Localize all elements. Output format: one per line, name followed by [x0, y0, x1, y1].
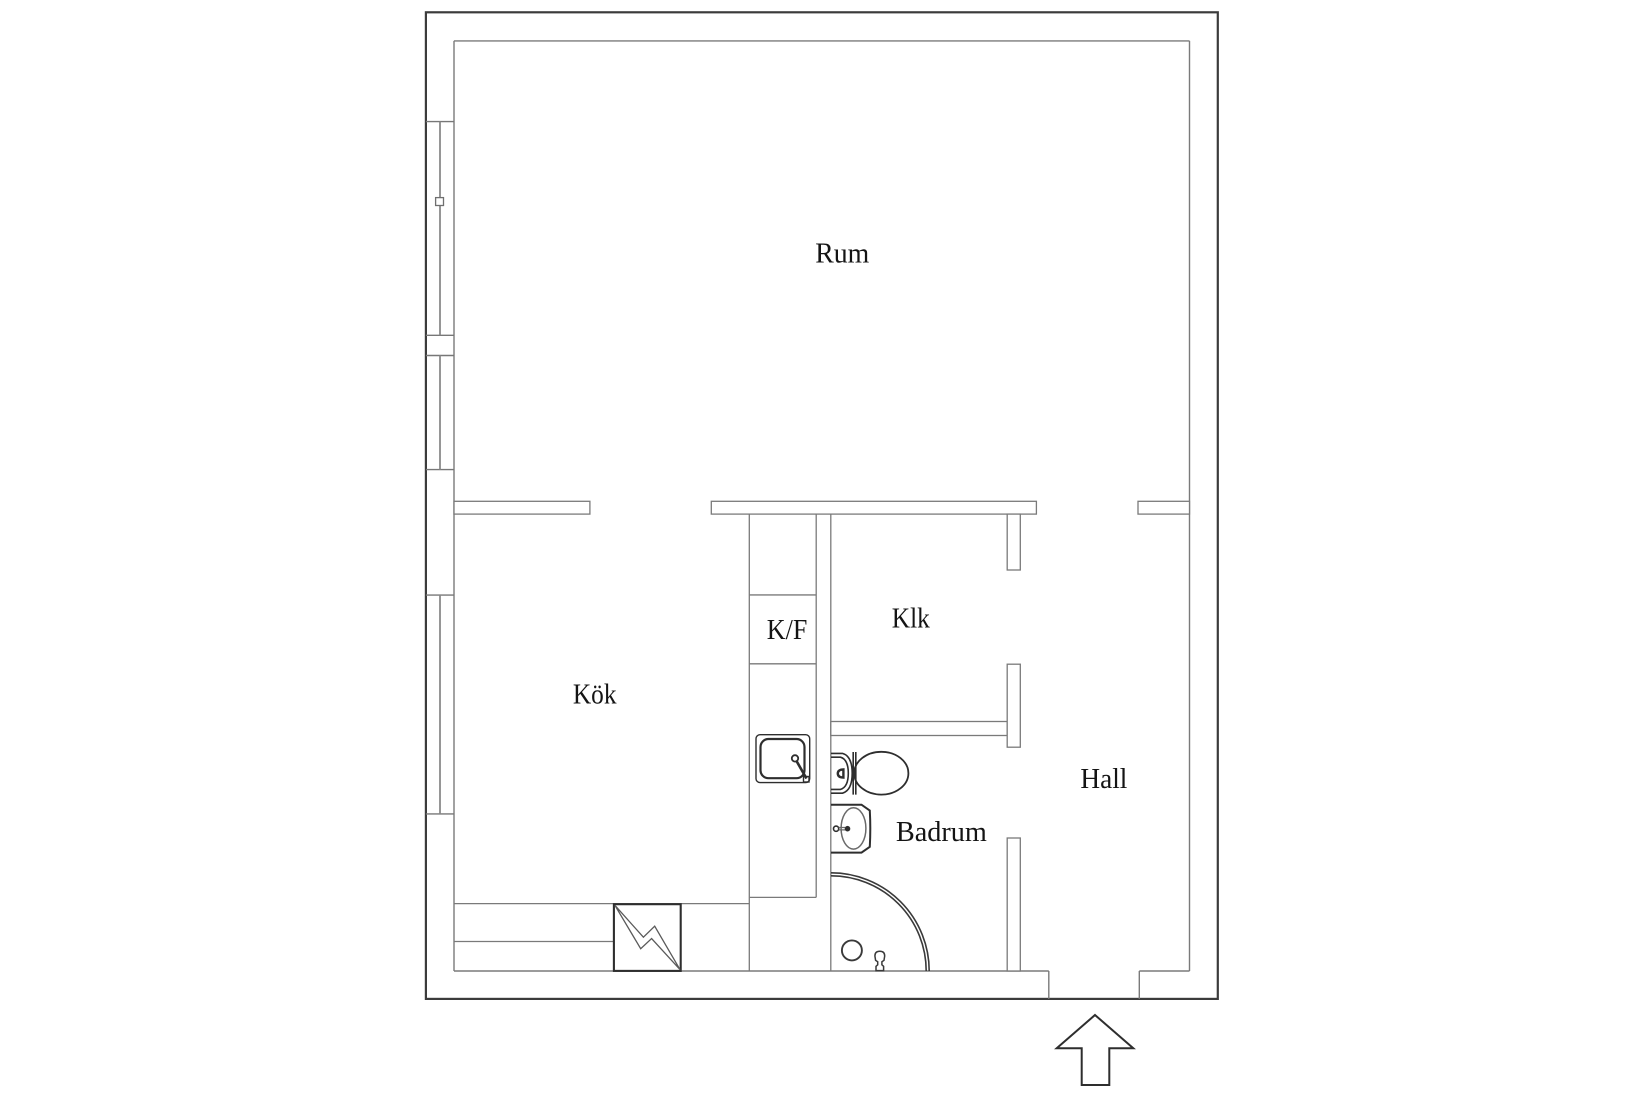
svg-text:Rum: Rum — [815, 237, 869, 269]
svg-text:Klk: Klk — [892, 602, 930, 634]
svg-text:Badrum: Badrum — [896, 816, 987, 848]
svg-text:K/F: K/F — [767, 614, 808, 646]
svg-text:Hall: Hall — [1080, 763, 1127, 795]
svg-text:Kök: Kök — [573, 678, 617, 710]
